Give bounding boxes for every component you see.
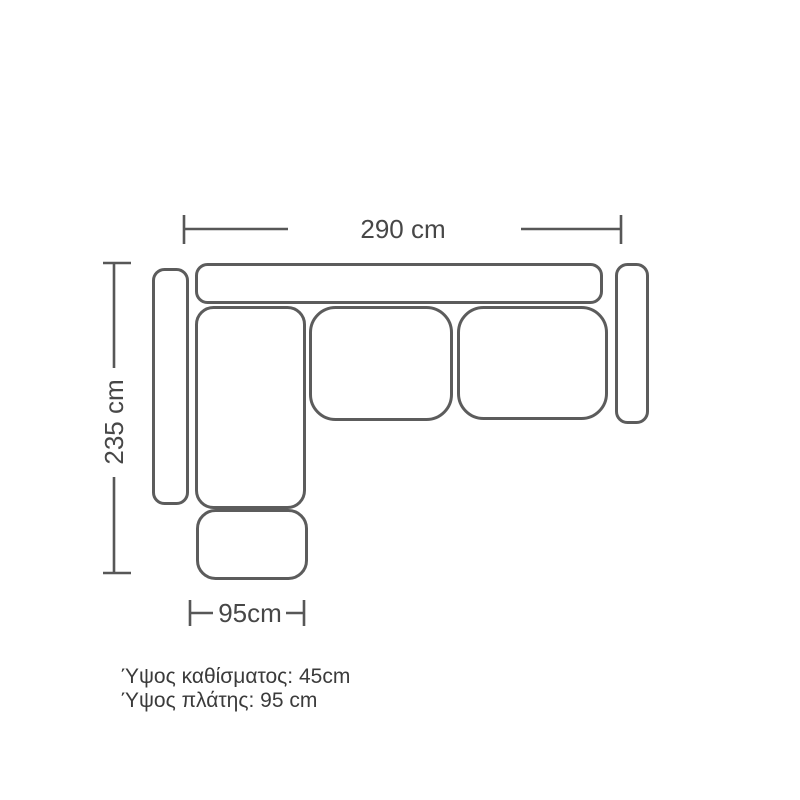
note-seat-height: Ύψος καθίσματος: 45cm [121, 665, 350, 688]
sofa-chaise-seat [197, 308, 305, 508]
note-back-height: Ύψος πλάτης: 95 cm [121, 689, 317, 712]
sofa-outline-group [154, 265, 648, 579]
dimension-total-width: 290 cm [184, 214, 621, 244]
dim-depth-label: 235 cm [99, 379, 129, 464]
sofa-left-armrest [154, 270, 188, 504]
dimension-chaise-width: 95cm [190, 598, 304, 628]
dim-width-label: 290 cm [360, 214, 445, 244]
notes-block: Ύψος καθίσματος: 45cm Ύψος πλάτης: 95 cm [121, 665, 350, 712]
diagram-drawing: 290 cm 235 cm 95cm Ύψος καθίσματος: 45cm… [0, 0, 800, 800]
sofa-backrest [197, 265, 602, 303]
sofa-middle-seat [311, 308, 452, 420]
dim-chaise-label: 95cm [218, 598, 282, 628]
sofa-right-armrest [617, 265, 648, 423]
dimension-total-depth: 235 cm [99, 263, 131, 573]
sofa-ottoman [198, 511, 307, 579]
sofa-right-seat [459, 308, 607, 419]
sofa-dimension-diagram: 290 cm 235 cm 95cm Ύψος καθίσματος: 45cm… [0, 0, 800, 800]
